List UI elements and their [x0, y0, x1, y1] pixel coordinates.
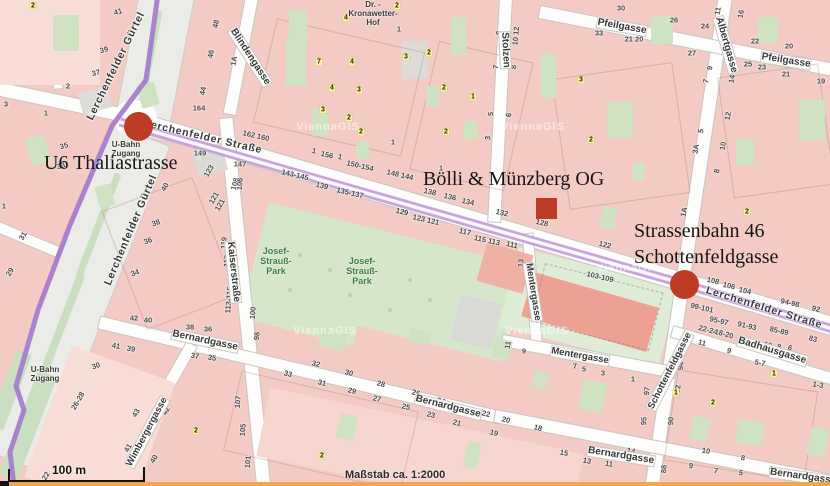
- courtyard-green: [289, 10, 307, 40]
- house-number: 7: [573, 362, 577, 370]
- house-number: 6: [505, 113, 513, 118]
- scale-bar-right-tick: [143, 467, 145, 482]
- map-note: Dr. - Kronawetter- Hof: [348, 0, 397, 28]
- house-number: 117: [458, 227, 471, 237]
- house-number: 2: [441, 85, 447, 92]
- house-number: 36: [204, 325, 212, 333]
- house-number: 83: [808, 334, 818, 343]
- house-number: 2: [346, 115, 352, 122]
- house-number: 1-3: [812, 380, 824, 389]
- house-number: 39: [126, 345, 136, 354]
- house-number: 5-7: [754, 358, 766, 367]
- house-number: 40: [144, 316, 152, 324]
- tree-dot: [288, 288, 292, 292]
- house-number: 136: [443, 192, 457, 202]
- house-number: 11: [504, 340, 513, 349]
- house-number: 1: [470, 94, 476, 101]
- map-marker-square-1[interactable]: [536, 198, 557, 219]
- house-number: 33: [595, 29, 603, 37]
- house-number: 1: [2, 202, 6, 210]
- house-number: 40: [149, 454, 160, 465]
- house-number: 22: [751, 37, 759, 45]
- tree-dot: [328, 268, 332, 272]
- viennagis-watermark: ViennaGIS: [501, 121, 565, 133]
- street-road: [0, 221, 60, 256]
- courtyard-green: [736, 139, 754, 165]
- annotation-tram-stop: Strassenbahn 46 Schottenfeldgasse: [634, 218, 778, 270]
- house-number: 18: [533, 423, 543, 432]
- house-number: 5: [487, 112, 495, 117]
- courtyard-green: [758, 17, 778, 43]
- house-number: 164: [193, 104, 206, 112]
- house-number: 29: [347, 386, 357, 395]
- courtyard-green: [598, 206, 618, 231]
- house-number: 90: [667, 417, 675, 426]
- house-number: 48: [212, 19, 221, 29]
- courtyard-green: [426, 86, 439, 106]
- house-number: 2: [710, 400, 716, 407]
- house-number: 106: [236, 177, 245, 190]
- courtyard-green: [807, 427, 830, 458]
- parcel-outline: [253, 18, 425, 156]
- building-block: [0, 0, 100, 85]
- house-number: 24: [701, 22, 709, 30]
- house-number: 95-97: [709, 315, 729, 327]
- house-number: 4: [349, 59, 355, 66]
- house-number: 3A: [691, 144, 700, 155]
- house-number: 46: [207, 49, 216, 59]
- tree-dot: [408, 278, 412, 282]
- house-number: 41: [111, 342, 121, 351]
- scale-bar-label: 100 m: [52, 463, 86, 477]
- house-number: 3: [356, 87, 362, 94]
- tree-dot: [388, 308, 392, 312]
- house-number: 115: [473, 234, 486, 244]
- house-number: 1: [337, 153, 343, 161]
- map-scale-ratio: Maßstab ca. 1:2000: [345, 469, 445, 481]
- house-number: 1: [771, 371, 777, 378]
- map-marker-circle-2[interactable]: [670, 270, 699, 299]
- courtyard-green: [541, 54, 556, 98]
- tree-dot: [348, 293, 352, 297]
- street-label: Stolzen: [499, 32, 511, 68]
- house-number: 21: [782, 70, 790, 78]
- house-number: 156: [320, 150, 334, 160]
- house-number: 15: [559, 449, 569, 458]
- house-number: 101: [244, 455, 253, 468]
- house-number: 1: [391, 138, 395, 146]
- house-number: 13: [582, 457, 592, 466]
- house-number: 29: [5, 267, 16, 278]
- house-number: 7: [316, 59, 322, 66]
- house-number: 147: [234, 160, 247, 168]
- courtyard-green: [632, 163, 645, 181]
- park-label: Josef- Strauß- Park: [346, 257, 378, 287]
- house-number: 11: [714, 6, 723, 15]
- scale-bar: 100 m: [8, 466, 145, 482]
- house-number: 149: [194, 149, 207, 157]
- courtyard-green: [463, 121, 478, 139]
- courtyard-green: [531, 370, 549, 391]
- tree-dot: [298, 253, 302, 257]
- house-number: 37: [91, 68, 101, 77]
- map-marker-circle-0[interactable]: [124, 112, 153, 141]
- house-number: 3: [320, 107, 326, 114]
- house-number: 88: [660, 465, 668, 474]
- house-number: 23: [426, 410, 436, 419]
- bottom-strip-end: [0, 481, 9, 486]
- annotation-company: Bölli & Münzberg OG: [423, 166, 604, 192]
- house-number: 2: [358, 129, 364, 136]
- park-label: Josef- Strauß- Park: [260, 247, 292, 277]
- house-number: 2: [744, 209, 750, 216]
- courtyard-green: [607, 102, 633, 138]
- house-number: 2: [193, 428, 199, 435]
- house-number: 2: [66, 82, 70, 90]
- house-number: 10: [701, 447, 711, 456]
- house-number: 129: [395, 207, 409, 217]
- viennagis-watermark: ViennaGIS: [293, 325, 357, 337]
- house-number: 107: [234, 395, 243, 408]
- house-number: 7: [713, 467, 718, 475]
- house-number: 2: [319, 453, 325, 460]
- annotation-tram-line1: Strassenbahn 46: [634, 218, 778, 244]
- courtyard-green: [356, 141, 369, 159]
- house-number: 2: [443, 129, 449, 136]
- house-number: 9: [522, 347, 526, 355]
- house-number: 5: [582, 365, 586, 373]
- house-number: 14: [728, 74, 737, 84]
- house-number: 134: [461, 197, 475, 207]
- house-number: 1: [631, 375, 635, 383]
- house-number: 27: [688, 49, 696, 57]
- house-number: 12: [724, 111, 733, 121]
- house-number: 4: [329, 85, 335, 92]
- house-number: 7: [492, 65, 500, 70]
- house-number: 16: [737, 9, 746, 19]
- bottom-strip: [0, 482, 830, 486]
- house-number: 99-101: [690, 302, 714, 315]
- house-number: 7: [702, 78, 710, 83]
- house-number: 98: [253, 332, 261, 341]
- courtyard-green: [286, 38, 306, 86]
- house-number: 105: [239, 423, 248, 436]
- house-number: 100: [249, 306, 258, 319]
- street-label: Bernardgasse: [414, 394, 481, 420]
- house-number: 23: [758, 63, 766, 71]
- house-number: 2: [588, 137, 594, 144]
- house-number: 95: [640, 417, 648, 426]
- house-number: 3: [4, 100, 8, 108]
- house-number: 92: [811, 304, 821, 313]
- house-number: 20: [785, 42, 793, 50]
- house-number: 31: [317, 378, 327, 387]
- house-number: 41: [113, 7, 123, 16]
- house-number: 91-93: [737, 320, 757, 332]
- house-number: 32: [311, 359, 321, 368]
- house-number: 26: [670, 16, 678, 24]
- house-number: 19: [817, 77, 825, 85]
- viennagis-watermark: ViennaGIS: [505, 325, 569, 337]
- house-number: 37: [190, 352, 200, 361]
- house-number: 39: [99, 45, 109, 54]
- house-number: 11: [604, 460, 613, 469]
- courtyard-green: [799, 100, 825, 140]
- house-number: 3: [601, 369, 605, 377]
- house-number: 25: [744, 60, 752, 68]
- house-number: 2: [426, 50, 432, 57]
- house-number: 3: [484, 136, 492, 141]
- house-number: 5: [738, 469, 743, 477]
- house-number: 38: [186, 323, 194, 331]
- house-number: 1A: [229, 56, 238, 67]
- house-number: 44: [199, 86, 208, 96]
- house-number: 150-154: [346, 159, 375, 173]
- map-canvas[interactable]: ViennaGISViennaGISViennaGISViennaGISVien…: [0, 0, 830, 486]
- map-note: U-Bahn Zugang: [31, 365, 60, 383]
- house-number: 8: [713, 168, 721, 173]
- house-number: 10 12: [511, 26, 520, 45]
- house-number: 2: [30, 3, 36, 10]
- house-number: 97: [643, 387, 651, 396]
- house-number: 3: [403, 54, 409, 61]
- annotation-u6-thaliastrasse: U6 Thaliastrasse: [44, 150, 178, 176]
- tree-dot: [428, 298, 432, 302]
- courtyard-green: [451, 17, 466, 55]
- house-number: 148 144: [386, 168, 414, 181]
- house-number: 139: [315, 181, 329, 191]
- house-number: 1A: [679, 207, 688, 218]
- house-number: 35: [207, 354, 217, 363]
- courtyard-green: [53, 15, 79, 51]
- house-number: 42: [130, 314, 138, 322]
- house-number: 128: [535, 218, 549, 228]
- house-number: 1: [673, 390, 679, 397]
- house-number: 21: [452, 418, 462, 427]
- house-number: 1: [44, 109, 48, 117]
- house-number: 85-89: [769, 325, 789, 337]
- house-number: 10: [719, 141, 728, 151]
- house-number: 9: [688, 462, 693, 470]
- courtyard-green: [735, 419, 765, 447]
- house-number: 33: [283, 369, 293, 378]
- courtyard-green: [579, 379, 608, 413]
- house-number: 3: [578, 77, 584, 84]
- house-number: 1: [311, 147, 317, 155]
- viennagis-watermark: ViennaGIS: [296, 121, 360, 133]
- house-number: 30: [617, 4, 625, 12]
- house-number: 21 20: [625, 35, 644, 43]
- house-number: 111: [505, 240, 518, 250]
- annotation-tram-line2: Schottenfeldgasse: [634, 244, 778, 270]
